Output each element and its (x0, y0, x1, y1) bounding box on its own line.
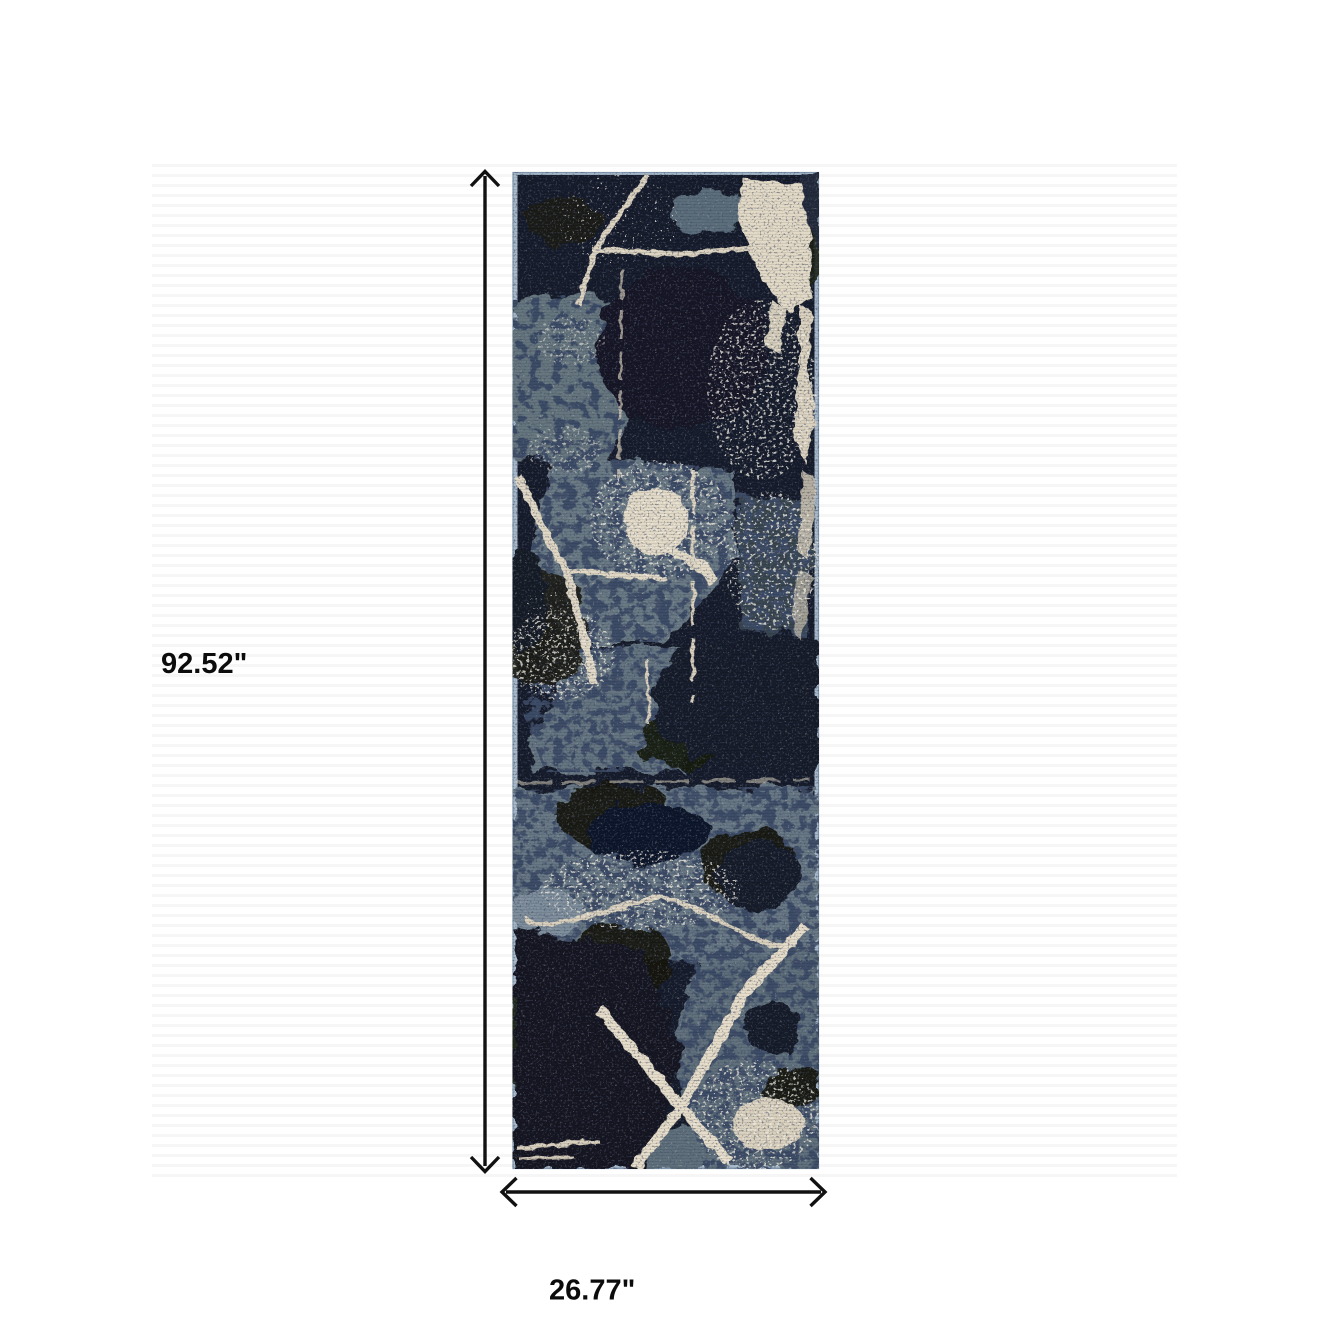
svg-text:92.52": 92.52" (161, 648, 247, 680)
svg-text:26.77": 26.77" (549, 1275, 635, 1307)
